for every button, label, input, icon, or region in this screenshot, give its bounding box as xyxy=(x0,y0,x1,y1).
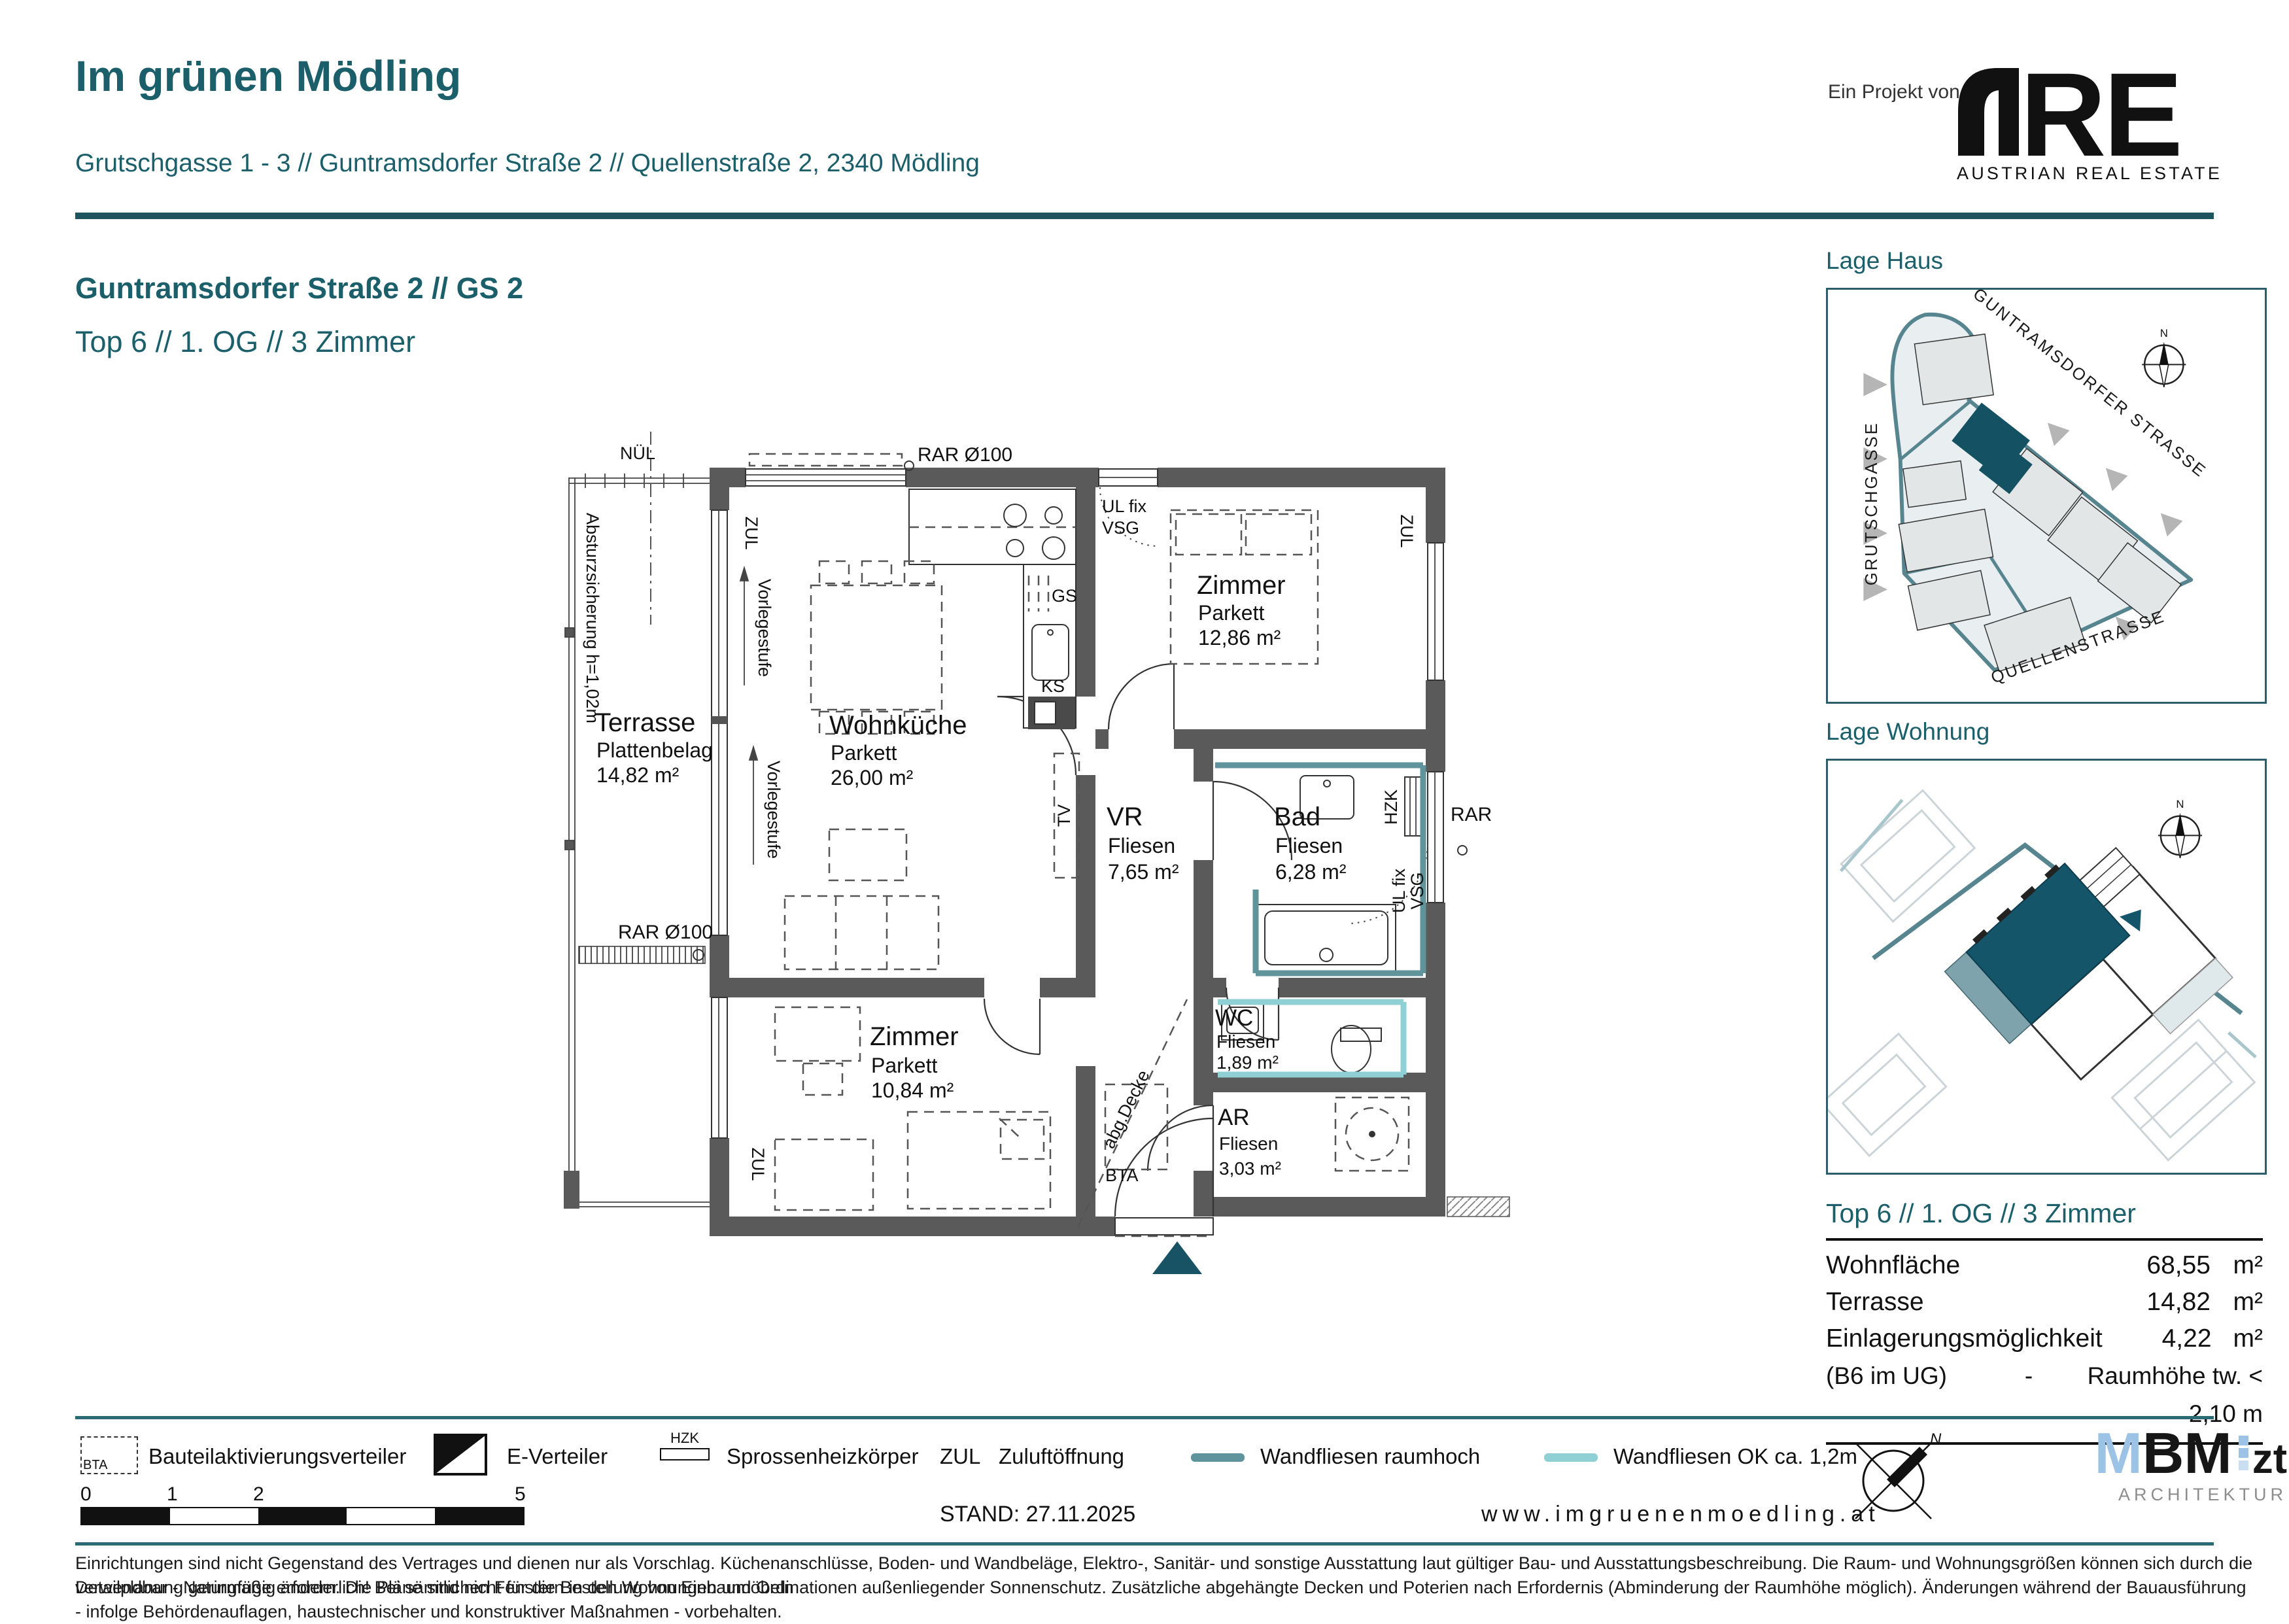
zul-label-1: ZUL xyxy=(742,516,761,549)
floor-plan: Terrasse Plattenbelag 14,82 m² Wohnküche… xyxy=(556,425,1511,1295)
bta-label: BTA xyxy=(1105,1166,1139,1185)
vorlegestufe-label-1: Vorlegestufe xyxy=(755,579,774,677)
scale-0: 0 xyxy=(80,1483,92,1506)
street-grutschgasse: GRUTSCHGASSE xyxy=(1863,421,1881,585)
hzk-symbol: HZK xyxy=(659,1430,711,1460)
info-unit: m² xyxy=(2211,1284,2263,1321)
info-unit: m² xyxy=(2212,1321,2263,1357)
compass-icon: N xyxy=(2142,327,2186,387)
unit-info-title: Top 6 // 1. OG // 3 Zimmer xyxy=(1826,1198,2263,1229)
info-value: 68,55 xyxy=(2099,1247,2211,1284)
abg-decke-label: abg.Decke xyxy=(1099,1067,1154,1151)
header-divider xyxy=(75,213,2214,219)
mbm-bm: BM xyxy=(2143,1421,2232,1485)
zimmer2-name: Zimmer xyxy=(870,1022,959,1051)
gs-label: GS xyxy=(1052,586,1077,606)
entrance-marker-icon xyxy=(1152,1241,1202,1274)
wandfliesen-raumhoch-swatch xyxy=(1191,1453,1245,1462)
wc-area: 1,89 m² xyxy=(1216,1052,1279,1073)
disclaimer-line-2: verwendbar - Naturmaße erforderlich! Bei… xyxy=(75,1576,2253,1624)
scale-2: 2 xyxy=(253,1483,264,1506)
rar-top-label: RAR Ø100 xyxy=(918,444,1012,466)
north-compass-icon: N xyxy=(1841,1428,1946,1533)
compass-n: N xyxy=(2176,798,2184,810)
rar-left-label: RAR Ø100 xyxy=(618,922,713,943)
site-plan: N GUNTRAMSDORFER STRASSE GRUTSCHGASSE QU… xyxy=(1828,290,2261,698)
zul-symbol-text: ZUL xyxy=(940,1444,980,1469)
lage-haus-map: N GUNTRAMSDORFER STRASSE GRUTSCHGASSE QU… xyxy=(1826,288,2267,704)
zimmer1-floor: Parkett xyxy=(1198,601,1264,625)
project-address: Grutschgasse 1 - 3 // Guntramsdorfer Str… xyxy=(75,149,980,178)
mbm-colon-icon xyxy=(2239,1433,2248,1473)
legend-everteiler-label: E-Verteiler xyxy=(507,1444,608,1469)
wc-floor: Fliesen xyxy=(1216,1031,1275,1052)
hzk-symbol-bar xyxy=(660,1448,710,1460)
zimmer2-floor: Parkett xyxy=(871,1054,937,1077)
ks-label: KS xyxy=(1041,676,1065,696)
are-logo: RE AUSTRIAN REAL ESTATE xyxy=(1955,58,2224,182)
legend-bta-label: Bauteilaktivierungsverteiler xyxy=(148,1444,406,1469)
info-row-wohnflaeche: Wohnfläche 68,55 m² xyxy=(1826,1247,2263,1284)
zul-label-2: ZUL xyxy=(1397,514,1417,547)
terrasse-name: Terrasse xyxy=(595,708,695,737)
bad-floor: Fliesen xyxy=(1275,834,1343,857)
bta-symbol: BTA xyxy=(80,1436,138,1474)
zimmer2-area: 10,84 m² xyxy=(871,1079,954,1102)
are-logo-subtitle: AUSTRIAN REAL ESTATE xyxy=(1957,164,2222,182)
legend-wandfliesen-ok-label: Wandfliesen OK ca. 1,2m xyxy=(1613,1444,1857,1469)
wohnkueche-name: Wohnküche xyxy=(829,711,967,740)
mbm-m: M xyxy=(2095,1421,2143,1485)
compass-icon: N xyxy=(2158,798,2202,858)
scale-1: 1 xyxy=(167,1483,178,1506)
info-row-terrasse: Terrasse 14,82 m² xyxy=(1826,1284,2263,1321)
ar-floor: Fliesen xyxy=(1219,1133,1278,1154)
building-footprint xyxy=(1941,827,2233,1118)
vorlegestufe-label-2: Vorlegestufe xyxy=(764,761,783,859)
vr-area: 7,65 m² xyxy=(1108,860,1179,884)
vsg-right-label: VSG xyxy=(1407,872,1427,909)
vr-floor: Fliesen xyxy=(1108,834,1175,857)
zimmer1-area: 12,86 m² xyxy=(1198,626,1281,649)
info-rule-top xyxy=(1826,1238,2263,1241)
wohnkueche-floor: Parkett xyxy=(831,741,897,765)
wandfliesen-ok-swatch xyxy=(1544,1453,1598,1462)
unit-heading: Top 6 // 1. OG // 3 Zimmer xyxy=(75,325,415,359)
scale-5: 5 xyxy=(515,1483,526,1506)
info-row-einlagerung: Einlagerungsmöglichkeit 4,22 m² xyxy=(1826,1321,2263,1357)
lage-wohnung-title: Lage Wohnung xyxy=(1826,718,1989,746)
mbm-subtitle: ARCHITEKTUR xyxy=(2006,1485,2287,1505)
zimmer1-name: Zimmer xyxy=(1197,571,1286,600)
page-title: Im grünen Mödling xyxy=(75,51,461,101)
plan-date: STAND: 27.11.2025 xyxy=(940,1502,1135,1527)
bad-area: 6,28 m² xyxy=(1275,860,1347,884)
legend-wandfliesen-hoch-label: Wandfliesen raumhoch xyxy=(1260,1444,1480,1469)
ar-name: AR xyxy=(1218,1105,1250,1130)
terrasse-floor: Plattenbelag xyxy=(596,738,713,762)
are-logo-a-icon xyxy=(1958,68,2019,156)
floorplan-document-page: { "header": { "title": "Im grünen Mödlin… xyxy=(0,0,2289,1619)
info-value: 14,82 xyxy=(2099,1284,2211,1321)
vr-name: VR xyxy=(1107,803,1143,831)
legend-zul-label: Zuluftöffnung xyxy=(999,1444,1124,1469)
terrasse-area: 14,82 m² xyxy=(596,763,680,787)
info-label: Terrasse xyxy=(1826,1284,2099,1321)
building-heading: Guntramsdorfer Straße 2 // GS 2 xyxy=(75,271,523,305)
zul-label-3: ZUL xyxy=(748,1147,768,1181)
ulfix-top-label: UL fix xyxy=(1102,496,1147,516)
ar-area: 3,03 m² xyxy=(1219,1158,1281,1179)
info-value: 4,22 xyxy=(2103,1321,2212,1357)
rar-right-label: RAR xyxy=(1451,804,1492,825)
unit-location-plan: N xyxy=(1828,761,2261,1169)
compass-n-glyph: N xyxy=(1930,1430,1942,1448)
legend-hzk-label: Sprossenheizkörper xyxy=(727,1444,919,1469)
e-verteiler-symbol xyxy=(434,1434,487,1476)
info-unit: m² xyxy=(2211,1247,2263,1284)
wohnkueche-area: 26,00 m² xyxy=(831,766,914,789)
are-logo-re: RE xyxy=(2020,58,2180,181)
hzk-label: HZK xyxy=(1381,789,1401,825)
project-by-label: Ein Projekt von xyxy=(1828,81,1960,103)
scale-bar xyxy=(80,1507,525,1525)
ulfix-right-label: UL fix xyxy=(1389,868,1409,913)
absturz-label: Absturzsicherung h=1,02m xyxy=(583,513,602,723)
hzk-symbol-text: HZK xyxy=(659,1430,711,1447)
ar-washer xyxy=(1335,1097,1409,1171)
mbm-zt: zt xyxy=(2252,1435,2287,1482)
vsg-top-label: VSG xyxy=(1102,518,1139,538)
unit-info-table: Top 6 // 1. OG // 3 Zimmer Wohnfläche 68… xyxy=(1826,1198,2263,1451)
wc-name: WC xyxy=(1215,1005,1253,1031)
mbm-architektur-logo: MBMzt ARCHITEKTUR xyxy=(2006,1423,2287,1505)
tv-label: TV xyxy=(1054,804,1074,827)
info-label: Wohnfläche xyxy=(1826,1247,2099,1284)
website-url: www.imgruenenmoedling.at xyxy=(1481,1502,1880,1527)
bad-name: Bad xyxy=(1274,803,1320,831)
compass-n: N xyxy=(2160,327,2168,339)
bta-symbol-text: BTA xyxy=(83,1458,107,1473)
nuel-label: NÜL xyxy=(620,443,655,463)
lage-haus-title: Lage Haus xyxy=(1826,247,1943,275)
footer-legend-bar: BTA Bauteilaktivierungsverteiler E-Verte… xyxy=(75,1416,2214,1546)
lage-wohnung-map: N xyxy=(1826,759,2267,1175)
info-label: Einlagerungsmöglichkeit xyxy=(1826,1321,2103,1357)
